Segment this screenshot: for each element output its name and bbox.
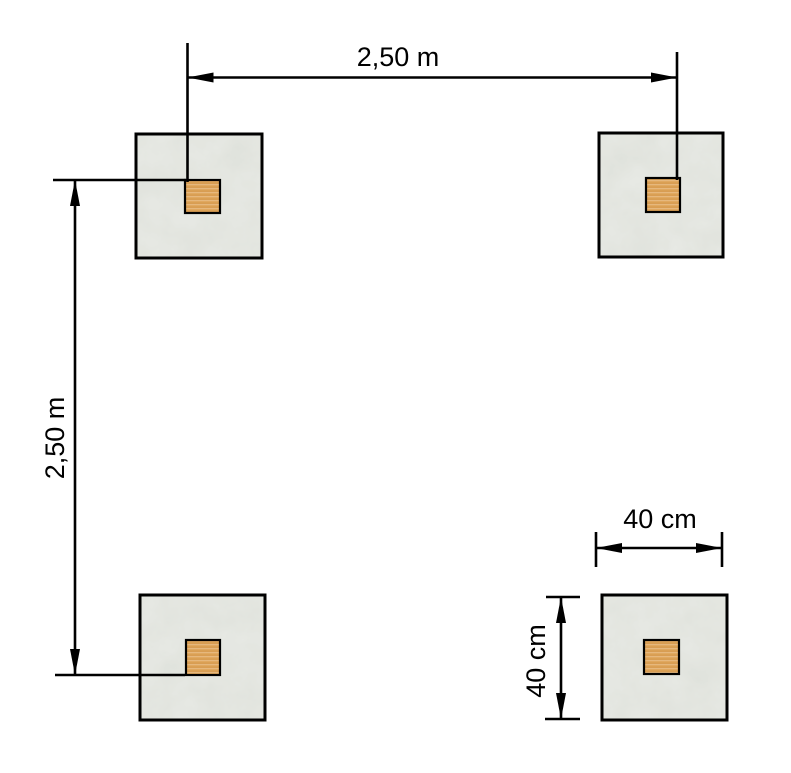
dimension-label-footing-width: 40 cm [623,504,697,534]
footing-bottom-left [140,595,265,720]
wood-post-bottom-left [186,640,220,675]
foundation-plan-canvas: 2,50 m 2,50 m 40 cm 40 cm [0,0,791,773]
footing-top-left [136,134,262,258]
footing-bottom-right [602,595,727,720]
wood-post-bottom-right [644,640,679,674]
wood-post-top-right [646,178,680,212]
wood-post-top-left [185,180,220,213]
foundation-plan-diagram: 2,50 m 2,50 m 40 cm 40 cm [0,0,791,773]
dimension-label-left-spacing: 2,50 m [40,397,70,480]
dimension-label-top-spacing: 2,50 m [357,42,440,72]
dimension-label-footing-height: 40 cm [521,624,551,698]
footing-top-right [599,133,723,257]
